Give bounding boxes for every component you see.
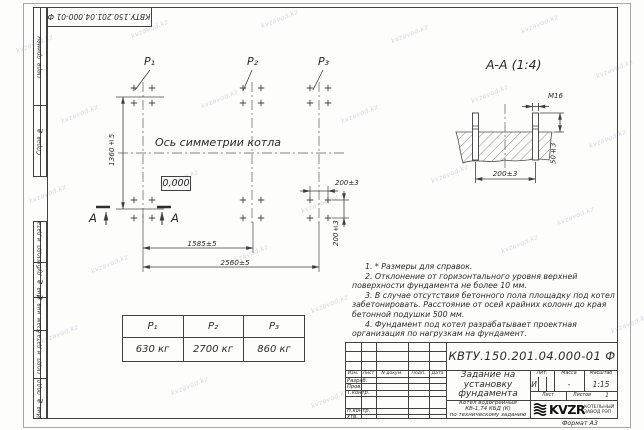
load-table-header-p2: Р₂	[183, 319, 243, 334]
company-name-line1: КОТЕЛЬНЫЙ	[584, 405, 614, 410]
margin-label-sprav-n: Справ. №	[33, 104, 47, 177]
title-block-line	[546, 377, 547, 391]
load-point-p2-label: Р₂	[247, 55, 258, 68]
column-header-ndocum: N докум.	[376, 371, 408, 378]
product-name: Котел водогрейный КВ-1,74 КБД (К) по тех…	[447, 401, 529, 418]
margin-label-vzam-inv: Взам. инв. №	[33, 297, 47, 330]
document-title-line2: установку	[464, 380, 513, 390]
title-block-line	[345, 351, 446, 352]
mass-value: -	[554, 378, 584, 390]
drawing-sheet: { "watermark": "kvzavod.kz", "corner_sta…	[0, 0, 644, 430]
kvzr-logo-icon	[533, 403, 547, 416]
note-4: 4. Фундамент под котел разрабатывает про…	[352, 320, 622, 339]
load-table-value-p2: 2700 кг	[183, 342, 243, 357]
scale-value: 1:15	[584, 378, 618, 390]
format-note: Формат А3	[562, 420, 598, 427]
elevation-mark-box: 0,000	[161, 176, 191, 191]
title-block-line	[530, 400, 618, 401]
sheet-label: Лист	[530, 392, 566, 399]
margin-label-inv-podl: Инв. № подл.	[33, 378, 47, 419]
row-label-utv: Утв.	[347, 414, 358, 420]
sheets-value: 1	[598, 392, 616, 399]
load-table-header-p3: Р₃	[243, 319, 305, 334]
dimension-2560: 2560±5	[215, 257, 255, 267]
dimension-1585: 1585±5	[182, 238, 222, 248]
load-table-value-p3: 860 кг	[243, 342, 305, 357]
section-letter-a-right: А	[171, 211, 179, 225]
load-point-p3-label: Р₃	[318, 55, 329, 68]
boiler-symmetry-axis-label: Ось симметрии котла	[155, 136, 281, 149]
sheets-label: Листов	[566, 392, 598, 399]
kvzr-logo-text: KVZR	[549, 402, 585, 417]
margin-label-inv-dubl: Инв. № дубл.	[33, 262, 47, 297]
section-view-title: А-А (1:4)	[486, 57, 541, 72]
margin-label-podp-data-1: Подп. и дата	[33, 221, 47, 262]
section-dimension-50: 50±3	[548, 140, 559, 166]
margin-label-podp-data-2: Подп. и дата	[33, 330, 47, 378]
lit-label: Лит.	[530, 371, 554, 378]
document-title-line3: фундамента	[458, 389, 518, 399]
company-name: КОТЕЛЬНЫЙ ЗАВОД РЭП	[584, 405, 617, 416]
note-1: 1. * Размеры для справок.	[352, 262, 622, 272]
load-point-p1-label: Р₁	[144, 55, 155, 68]
margin-label-perv-primen: Перв. примен.	[33, 8, 47, 104]
column-header-data: Дата	[429, 371, 446, 378]
load-table-header-p1: Р₁	[122, 319, 183, 334]
column-header-izm: Изм.	[345, 371, 361, 378]
company-name-line2: ЗАВОД РЭП	[584, 410, 611, 415]
document-title-line1: Задание на	[461, 370, 516, 380]
title-block-line	[345, 361, 446, 362]
note-2: 2. Отклонение от горизонтального уровня …	[352, 272, 622, 291]
document-designation: КВТУ.150.201.04.000-01 Ф	[450, 344, 614, 368]
product-name-line3: по техническому заданию	[450, 412, 527, 418]
elevation-mark-value: 0,000	[162, 178, 189, 189]
technical-notes: 1. * Размеры для справок. 2. Отклонение …	[352, 262, 622, 339]
section-letter-a-left: А	[89, 211, 97, 225]
dimension-200-horizontal: 200±3	[335, 179, 359, 187]
load-table-value-p1: 630 кг	[122, 342, 183, 357]
corner-stamp-designation: КВТУ.150.201.04.000-01 Ф	[48, 8, 150, 26]
mass-label: Масса	[554, 371, 584, 378]
scale-label: Масштаб	[584, 371, 618, 378]
bolt-thread-label-m16: М16	[548, 92, 563, 100]
row-label-prov: Пров.	[347, 384, 362, 390]
document-title: Задание на установку фундамента	[446, 371, 530, 400]
row-label-tkontr: Т.контр.	[347, 390, 369, 396]
load-table-divider	[122, 337, 305, 338]
dimension-1360: 1360±5	[105, 130, 118, 170]
title-block-line	[538, 377, 539, 391]
section-dimension-200: 200±3	[485, 168, 525, 178]
column-header-list: Лист	[361, 371, 376, 378]
note-3: 3. В случае отсутствия бетонного пола пл…	[352, 291, 622, 320]
lit-value: И	[530, 378, 538, 390]
column-header-podp: Подп.	[408, 371, 429, 378]
dimension-200-vertical: 200±3	[330, 219, 342, 247]
